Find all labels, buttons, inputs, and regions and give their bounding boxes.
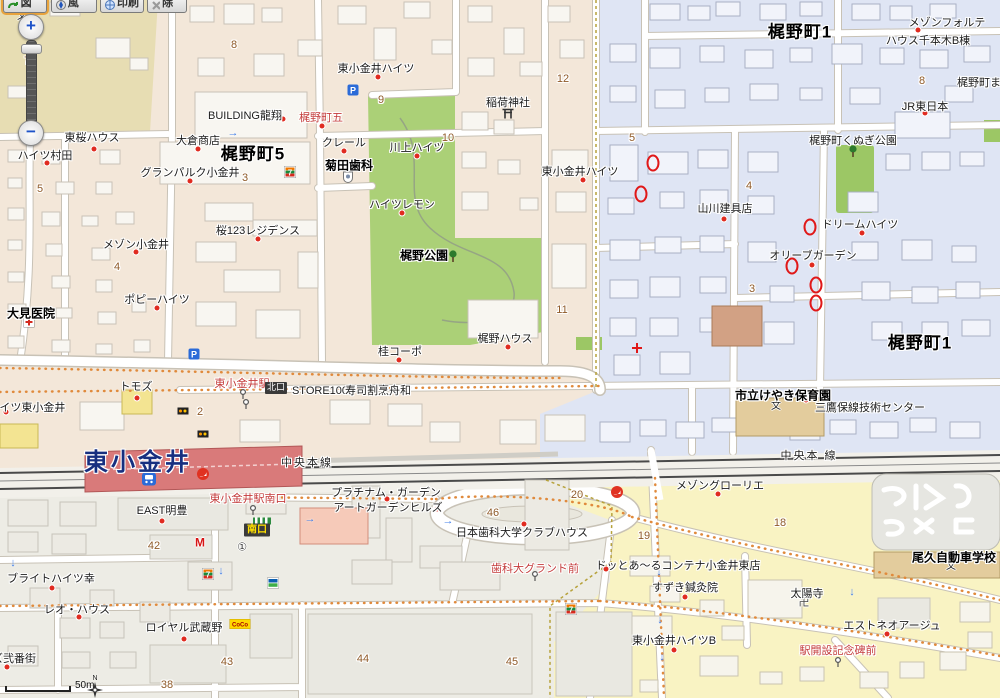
maison-forte: メゾンフォルテ [909, 17, 986, 29]
print-button[interactable]: 印刷 [100, 0, 144, 13]
heights-higashi-koganei: ハイツ東小金井 [0, 402, 65, 414]
leo-house: レオ・ハウス [44, 604, 110, 616]
block-number: 5 [629, 132, 635, 144]
tozakura-house: 東桜ハウス [65, 132, 120, 144]
nihon-shika-clubhouse: 日本歯科大学クラブハウス [456, 527, 588, 539]
south-exit-badge: 南口 [244, 524, 270, 537]
block-number: 45 [506, 656, 518, 668]
station-name: 東小金井 [84, 450, 192, 476]
block-number: 43 [221, 656, 233, 668]
higashi-koganei-heights-b: 東小金井ハイツB [632, 635, 716, 647]
omi-clinic: 大見医院 [7, 307, 55, 320]
dream-heights: ドリームハイツ [822, 219, 898, 231]
area-kajinocho-1-east: 梶野町1 [888, 335, 952, 354]
store100: STORE100 [292, 385, 348, 397]
block-number: 3 [749, 283, 755, 295]
block-number: 5 [37, 183, 43, 195]
sushi-funawa: 寿司割烹舟和 [345, 385, 411, 397]
chuo-line-west: 中央本線 [281, 457, 333, 469]
block-number: 12 [557, 73, 569, 85]
kajinocho-ma: 梶野町ま [957, 77, 1000, 89]
jr-east: JR東日本 [902, 101, 948, 113]
map-stage: 文文文777PP①卍MCoCo→→→↓↓↓↓↓↓ 梶野町5梶野町1梶野町1東小金… [0, 0, 1000, 698]
zoom-in-button[interactable]: + [18, 14, 44, 40]
block-number: 3 [242, 172, 248, 184]
area-kajinocho-1-north: 梶野町1 [768, 24, 832, 43]
map-mode-icon [8, 1, 19, 10]
royal-musashino: ロイヤル武蔵野 [146, 622, 223, 634]
block-number: 4 [114, 261, 120, 273]
scale-bar-line [5, 686, 71, 692]
clear-button-label: 解除 [162, 0, 182, 10]
heights-lemon: ハイツレモン [369, 199, 435, 211]
area-kajinocho-5: 梶野町5 [221, 146, 285, 165]
block-number: 42 [148, 540, 160, 552]
tomods: トモズ [120, 381, 153, 393]
compass-3d-icon [56, 0, 66, 10]
block-number: 9 [378, 94, 384, 106]
zoom-out-button[interactable]: − [18, 120, 44, 146]
claire: クレール [322, 137, 366, 149]
kikuta-dental: 菊田歯科 [325, 159, 373, 172]
taiyoji-temple: 太陽寺 [791, 588, 824, 600]
stop-south-exit: 東小金井駅南口 [210, 493, 287, 505]
inari-shrine: 稲荷神社 [486, 97, 530, 109]
olive-garden: オリーブガーデン [769, 250, 856, 262]
block-number: 38 [161, 679, 173, 691]
higashi-koganei-heights-east: 東小金井ハイツ [542, 166, 619, 178]
stop-kajinocho-go: 梶野町五 [299, 112, 343, 124]
north-exit-badge: 北口 [265, 382, 287, 394]
block-number: 2 [197, 406, 203, 418]
building-ryusho: BUILDING龍翔 [208, 110, 282, 122]
map-button[interactable]: 地図 [3, 0, 47, 13]
maison-glorie: メゾングローリエ [676, 480, 764, 492]
heights-murata: ハイツ村田 [18, 150, 73, 162]
kajino-house: 梶野ハウス [478, 333, 533, 345]
platinum-garden: プラチナム・ガーデン [331, 487, 441, 499]
est-neo-age: エストネオアージュ [843, 620, 940, 632]
kunugi-park: 梶野町くぬぎ公園 [809, 135, 897, 147]
block-number: 18 [774, 517, 786, 529]
okura-shoten: 大倉商店 [176, 135, 220, 147]
map-labels-layer: 梶野町5梶野町1梶野町1東小金井中央本線中央本 線梶野公園大見医院菊田歯科市立け… [0, 0, 1000, 698]
dot-ar-container: ドッとあ〜るコンテナ小金井東店 [596, 560, 761, 572]
art-garden-hills: アートガーデンヒルズ [333, 502, 442, 514]
scale-bar: 50m [5, 686, 71, 692]
sakura123-residence: 桜123レジデンス [216, 225, 300, 237]
bright-heights-sachi: ブライトハイツ幸 [7, 573, 95, 585]
block-number: 44 [357, 653, 369, 665]
block-number: 19 [638, 530, 650, 542]
zoom-slider-handle[interactable] [21, 44, 42, 54]
house-senbongi-b: ハウス千本木B棟 [886, 35, 970, 47]
close-x-icon [152, 1, 160, 10]
ogu-driving-school: 尾久自動車学校 [912, 551, 996, 564]
threed-button[interactable]: 3D風 [51, 0, 97, 13]
kajino-park: 梶野公園 [400, 249, 448, 262]
kawakami-heights: 川上ハイツ [390, 142, 445, 154]
print-button-label: 印刷 [117, 0, 139, 10]
zu-nibangai: ズ弐番街 [0, 653, 36, 665]
stop-shikadai-ground: 歯科大グランド前 [491, 563, 579, 575]
compass-rose: N [86, 676, 104, 698]
katsura-corpo: 桂コーポ [378, 346, 422, 358]
block-number: 20 [571, 489, 583, 501]
stop-ekikaisetsu-kinenhi: 駅開設記念碑前 [800, 645, 877, 657]
suzuki-shinkyuin: すずき鍼灸院 [652, 582, 718, 594]
block-number: 4 [746, 180, 752, 192]
poppy-heights: ポピーハイツ [124, 294, 190, 306]
block-number: 11 [556, 304, 567, 316]
block-number: 46 [487, 507, 499, 519]
mitaka-hosen-center: 三鷹保線技術センター [815, 402, 925, 414]
east-meiho: EAST明豊 [137, 505, 188, 517]
block-number: 8 [231, 39, 237, 51]
yamakawa-tategu: 山川建具店 [698, 203, 753, 215]
higashi-koganei-heights-north: 東小金井ハイツ [338, 63, 415, 75]
map-button-label: 地図 [21, 0, 42, 10]
threed-button-label: 3D風 [68, 0, 92, 10]
block-number: 10 [442, 132, 454, 144]
globe-print-icon [105, 0, 115, 10]
maison-koganei: メゾン小金井 [103, 239, 169, 251]
stop-higashi-koganei-sta: 東小金井駅 [215, 378, 270, 390]
block-number: 8 [919, 75, 925, 87]
grand-parc-koganei: グランパルク小金井 [141, 167, 240, 179]
chuo-line-east: 中央本 線 [780, 450, 837, 462]
clear-button[interactable]: 解除 [147, 0, 187, 13]
keyaki-nursery: 市立けやき保育園 [735, 389, 831, 402]
compass-star-icon [86, 682, 104, 698]
